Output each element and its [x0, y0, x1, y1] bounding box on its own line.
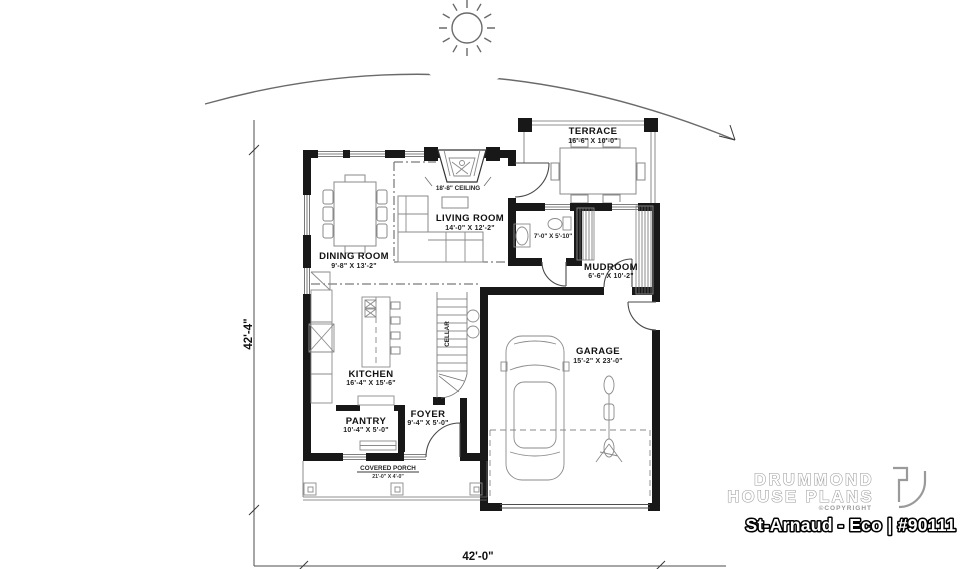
motorcycle [596, 376, 622, 462]
kitchen-island [362, 297, 400, 367]
dining-room-label: DINING ROOM [319, 251, 389, 262]
mudroom-size: 6'-6" X 10'-2" [588, 273, 633, 280]
overall-width-dim: 42'-0" [462, 551, 493, 563]
car [501, 336, 569, 480]
foyer-size: 9'-4" X 5'-0" [407, 420, 448, 427]
pantry-size: 10'-4" X 5'-0" [343, 427, 388, 434]
floor-plan-page: TERRACE 16'-6" X 10'-0" 18'-8" CEILING L… [0, 0, 960, 569]
cellar-label: CELLAR [444, 321, 451, 347]
fireplace [438, 150, 486, 182]
pantry-label: PANTRY [346, 416, 387, 427]
brand-line1: DRUMMOND [754, 471, 874, 489]
terrace-table [551, 139, 645, 203]
mudroom-storage [577, 206, 653, 294]
garage-label: GARAGE [576, 346, 620, 357]
coffee-table [442, 197, 468, 208]
brand-line2: HOUSE PLANS [727, 488, 874, 506]
kitchen-size: 16'-4" X 15'-6" [346, 380, 396, 387]
garage-door [490, 430, 650, 508]
kitchen-counter [309, 272, 334, 403]
overall-depth-dim: 42'-4" [243, 318, 255, 349]
living-room-size: 14'-0" X 12'-2" [445, 225, 495, 232]
bath-fixtures [514, 217, 571, 247]
ceiling-note: 18'-8" CEILING [436, 185, 480, 192]
foyer-label: FOYER [411, 409, 446, 420]
floor-plan-image: TERRACE 16'-6" X 10'-0" 18'-8" CEILING L… [0, 0, 960, 569]
porch-label: COVERED PORCH [360, 465, 416, 472]
terrace-size: 16'-6" X 10'-0" [568, 138, 618, 145]
brand-copyright: ©COPYRIGHT [819, 504, 872, 512]
living-room-label: LIVING ROOM [436, 213, 504, 224]
plan-title: St-Arnaud - Eco | #90111 [745, 515, 956, 535]
drummond-logo-icon [893, 468, 925, 507]
kitchen-label: KITCHEN [348, 369, 393, 380]
porch-size: 21'-0" X 4'-0" [372, 474, 404, 480]
brand-block: DRUMMOND HOUSE PLANS ©COPYRIGHT St-Arnau… [727, 468, 956, 535]
bath-size: 7'-0" X 5'-10" [534, 233, 572, 240]
garage-size: 15'-2" X 23'-0" [573, 358, 623, 365]
dining-table [323, 175, 387, 253]
mudroom-label: MUDROOM [584, 262, 638, 273]
terrace-label: TERRACE [569, 126, 618, 137]
dining-room-size: 9'-8" X 13'-2" [331, 263, 376, 270]
